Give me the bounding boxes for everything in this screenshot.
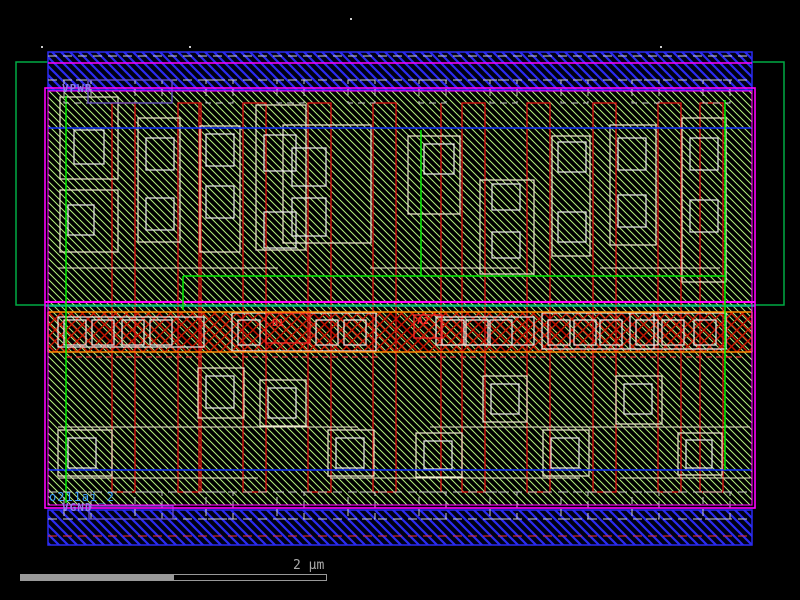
met1-vpwr-rail: [48, 52, 752, 90]
met1-vgnd-rail: [48, 510, 752, 545]
tap-row-crosshatch: [48, 312, 752, 352]
grid-dot: [660, 46, 662, 48]
scale-bar-outline-segment: [173, 574, 327, 581]
layout-drawing[interactable]: [0, 0, 800, 600]
layout-viewer-canvas[interactable]: VPWR o211ai_2 VGND B1 A2 2 µm: [0, 0, 800, 600]
scale-bar-filled-segment: [20, 574, 173, 581]
grid-dot: [41, 46, 43, 48]
grid-dot: [189, 46, 191, 48]
grid-dot: [350, 18, 352, 20]
